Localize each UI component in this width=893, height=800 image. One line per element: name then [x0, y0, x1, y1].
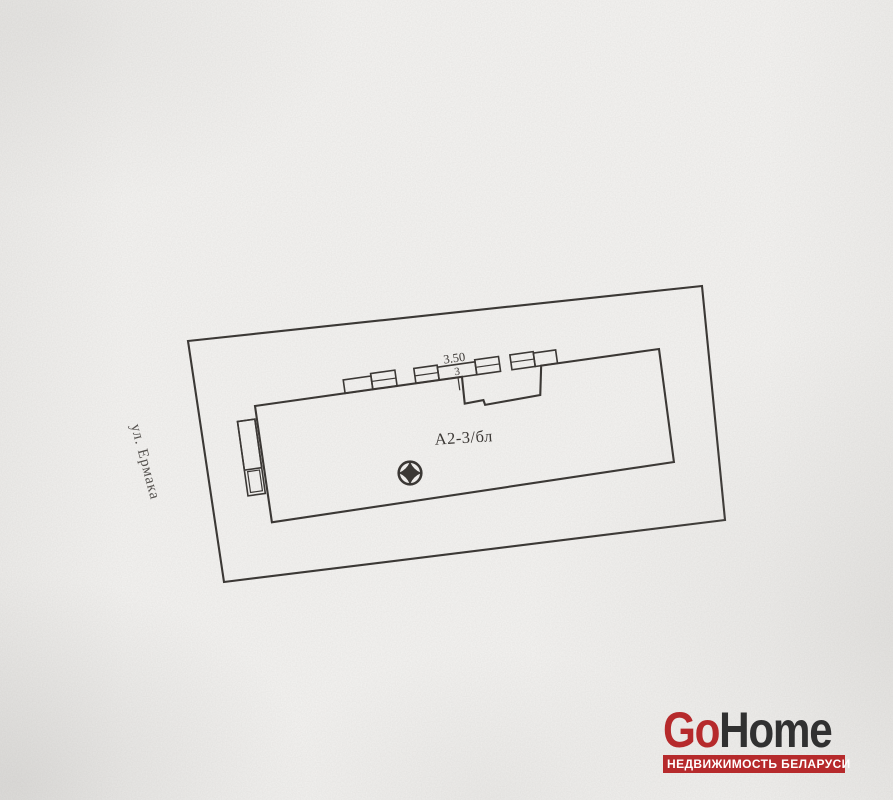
gohome-watermark: GoHome НЕДВИЖИМОСТЬ БЕЛАРУСИ	[663, 709, 845, 773]
survey-marker-icon	[399, 462, 422, 485]
site-plan-drawing: 3.50 3 А2-3/бл ул. Ермака	[0, 0, 893, 800]
paper-grain	[0, 0, 893, 800]
gohome-wordmark: GoHome	[663, 709, 817, 752]
building-label: А2-3/бл	[434, 426, 493, 449]
brand-prefix: Go	[663, 702, 719, 758]
scanned-plan-page: 3.50 3 А2-3/бл ул. Ермака GoHome НЕДВИЖИ…	[0, 0, 893, 800]
brand-suffix: Home	[719, 702, 831, 758]
